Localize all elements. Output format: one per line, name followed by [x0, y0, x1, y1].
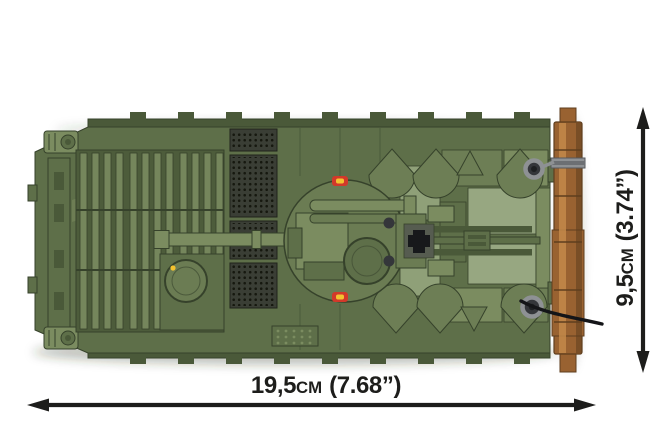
turret-hatch: [344, 238, 390, 284]
stud-plate: [272, 326, 318, 346]
height-value: 9,5: [612, 274, 639, 306]
height-dimension-label: 9,5cm(3.74”): [614, 169, 638, 306]
tank: [28, 108, 602, 372]
width-imperial: (7.68”): [329, 372, 401, 399]
width-dimension-arrow: [27, 399, 596, 412]
corner-lamp-bottom: [44, 327, 78, 349]
balkenkreuz-marking: [404, 224, 434, 258]
driver-hatch: [160, 254, 224, 330]
width-dimension-label: 19,5cm(7.68”): [251, 374, 401, 398]
width-value: 19,5: [251, 372, 296, 399]
product-dimension-figure: 19,5cm(7.68”) 9,5cm(3.74”): [0, 0, 672, 447]
corner-lamp-top: [44, 131, 78, 153]
width-unit: cm: [296, 378, 322, 397]
height-unit: cm: [618, 248, 637, 274]
wooden-log: [551, 108, 585, 372]
height-imperial: (3.74”): [612, 169, 639, 241]
